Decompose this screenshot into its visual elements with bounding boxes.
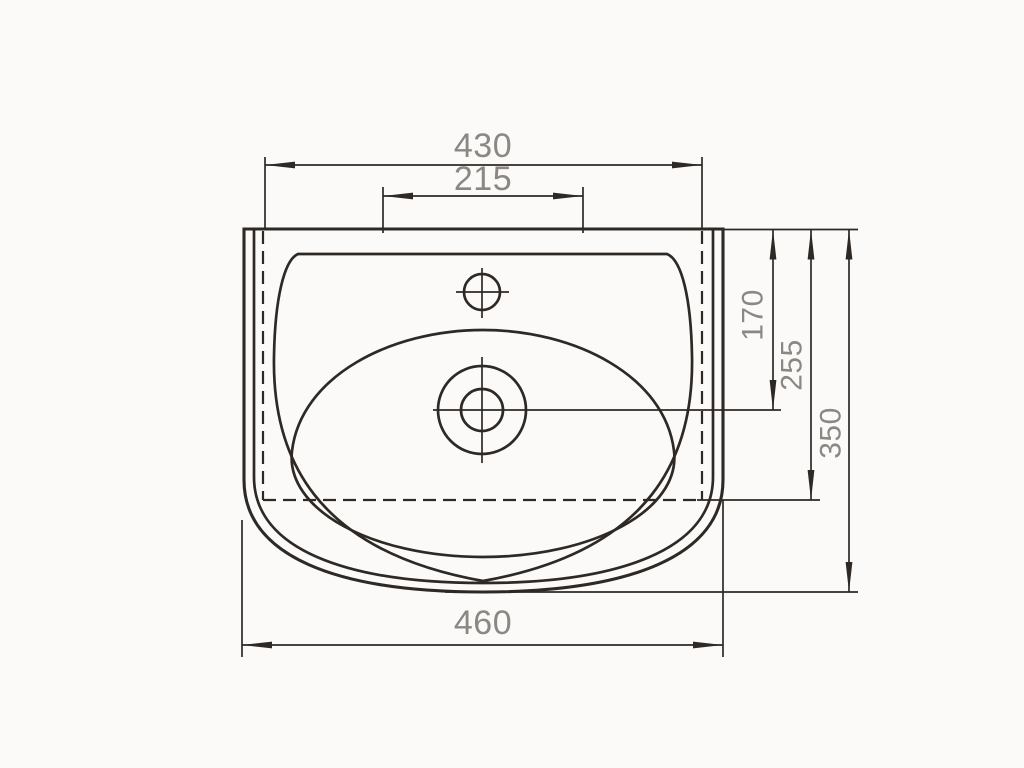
technical-drawing-page: 430 215 170 255 350 460 bbox=[0, 0, 1024, 768]
dim-label-drain-offset: 170 bbox=[737, 289, 770, 341]
basin-bowl bbox=[292, 330, 675, 557]
dim-label-overall-width: 460 bbox=[454, 604, 512, 642]
washbasin-dimension-drawing: 430 215 170 255 350 460 bbox=[0, 0, 1024, 768]
inner-wall-outline bbox=[254, 229, 713, 583]
dim-label-hidden-depth: 255 bbox=[776, 339, 809, 391]
dim-label-tap-span: 215 bbox=[454, 160, 512, 198]
deck-inner-rim bbox=[274, 254, 692, 581]
dimension-overall-width: 460 bbox=[242, 500, 723, 657]
dim-label-overall-depth: 350 bbox=[815, 407, 848, 459]
dimension-tap-span: 215 bbox=[383, 160, 583, 233]
basin-body bbox=[244, 229, 781, 592]
